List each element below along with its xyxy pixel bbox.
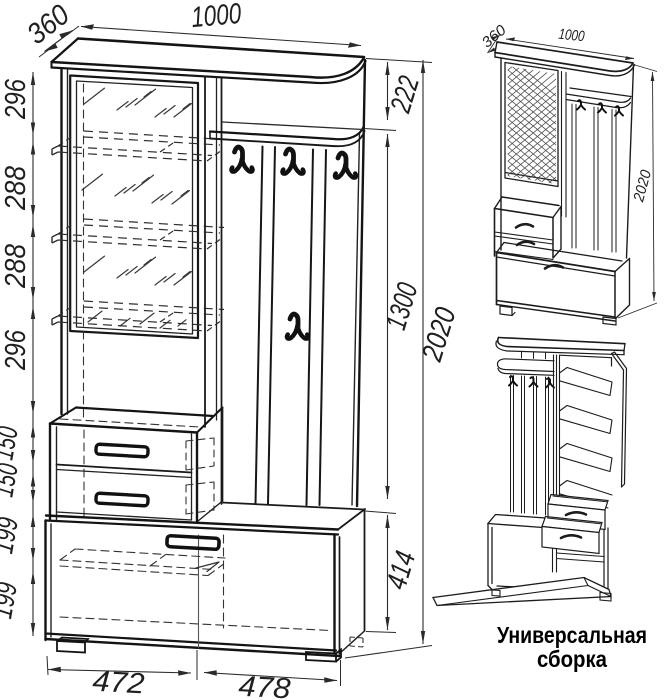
svg-text:288: 288 xyxy=(0,166,32,211)
svg-text:478: 478 xyxy=(238,671,292,700)
svg-text:296: 296 xyxy=(0,78,32,120)
svg-text:1000: 1000 xyxy=(190,0,243,34)
svg-text:296: 296 xyxy=(0,329,32,371)
svg-text:Универсальная: Универсальная xyxy=(497,622,647,648)
svg-text:сборка: сборка xyxy=(537,646,607,672)
svg-text:472: 472 xyxy=(92,666,146,700)
svg-text:288: 288 xyxy=(0,244,32,289)
svg-text:1000: 1000 xyxy=(558,26,586,46)
